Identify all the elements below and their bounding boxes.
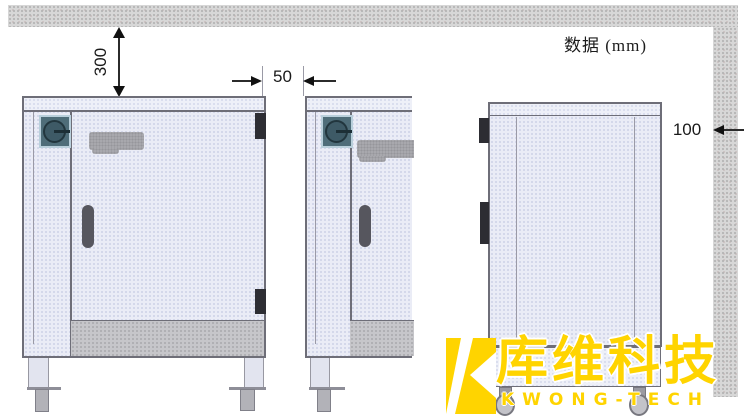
door-hinge-bottom <box>480 202 489 244</box>
arrow-left-icon <box>713 125 724 135</box>
leg-right <box>244 358 264 387</box>
watermark-text-cn: 库维科技 <box>496 334 720 390</box>
dimension-label-50: 50 <box>262 68 303 86</box>
door-handle <box>82 205 94 248</box>
side-frame-line <box>33 112 34 344</box>
cabinet-top-cap <box>490 104 660 116</box>
cabinet-front-view-partial <box>305 96 412 358</box>
watermark-text-en: KWONG-TECH <box>501 390 710 410</box>
knob-pointer <box>336 130 352 133</box>
dimension-line-right <box>724 129 744 131</box>
kick-plate <box>350 320 414 356</box>
dimension-label-100: 100 <box>663 121 711 139</box>
cabinet-front-view <box>22 96 266 358</box>
units-note-label: 数据 (mm) <box>564 31 647 56</box>
cabinet-side-view <box>488 102 662 347</box>
wall-hatch-top <box>8 5 738 27</box>
cabinet-top-cap <box>24 98 264 112</box>
cabinet-top-cap <box>307 98 412 112</box>
kwong-tech-logo-icon <box>446 338 496 414</box>
control-knob <box>321 115 353 148</box>
installation-clearance-diagram: 数据 (mm) 300 50 100 <box>0 0 745 417</box>
door-hinge-top <box>255 113 266 139</box>
side-frame-line <box>315 112 316 344</box>
watermark: 库维科技 KWONG-TECH <box>446 336 745 417</box>
dimension-line-left <box>232 80 252 82</box>
leveling-foot-left <box>35 389 49 412</box>
arrow-left-icon <box>303 76 314 86</box>
leveling-foot-right <box>240 389 255 411</box>
leg-left <box>28 358 49 387</box>
vent-grille-step <box>92 148 119 154</box>
kick-plate <box>71 320 264 356</box>
knob-pointer <box>54 130 70 133</box>
dimension-line-vertical <box>118 38 120 87</box>
dimension-line-right <box>314 80 336 82</box>
leg-left <box>310 358 330 387</box>
panel-seam-front <box>516 117 517 345</box>
dimension-label-300: 300 <box>92 42 116 82</box>
arrow-up-icon <box>113 27 125 38</box>
panel-seam-rear <box>634 117 635 345</box>
door-handle <box>359 205 371 247</box>
door-hinge-top <box>479 118 489 143</box>
arrow-right-icon <box>251 76 262 86</box>
leveling-foot-left <box>317 389 331 412</box>
door-hinge-bottom <box>255 289 266 314</box>
control-knob <box>39 115 71 148</box>
vent-grille-step <box>359 156 386 162</box>
